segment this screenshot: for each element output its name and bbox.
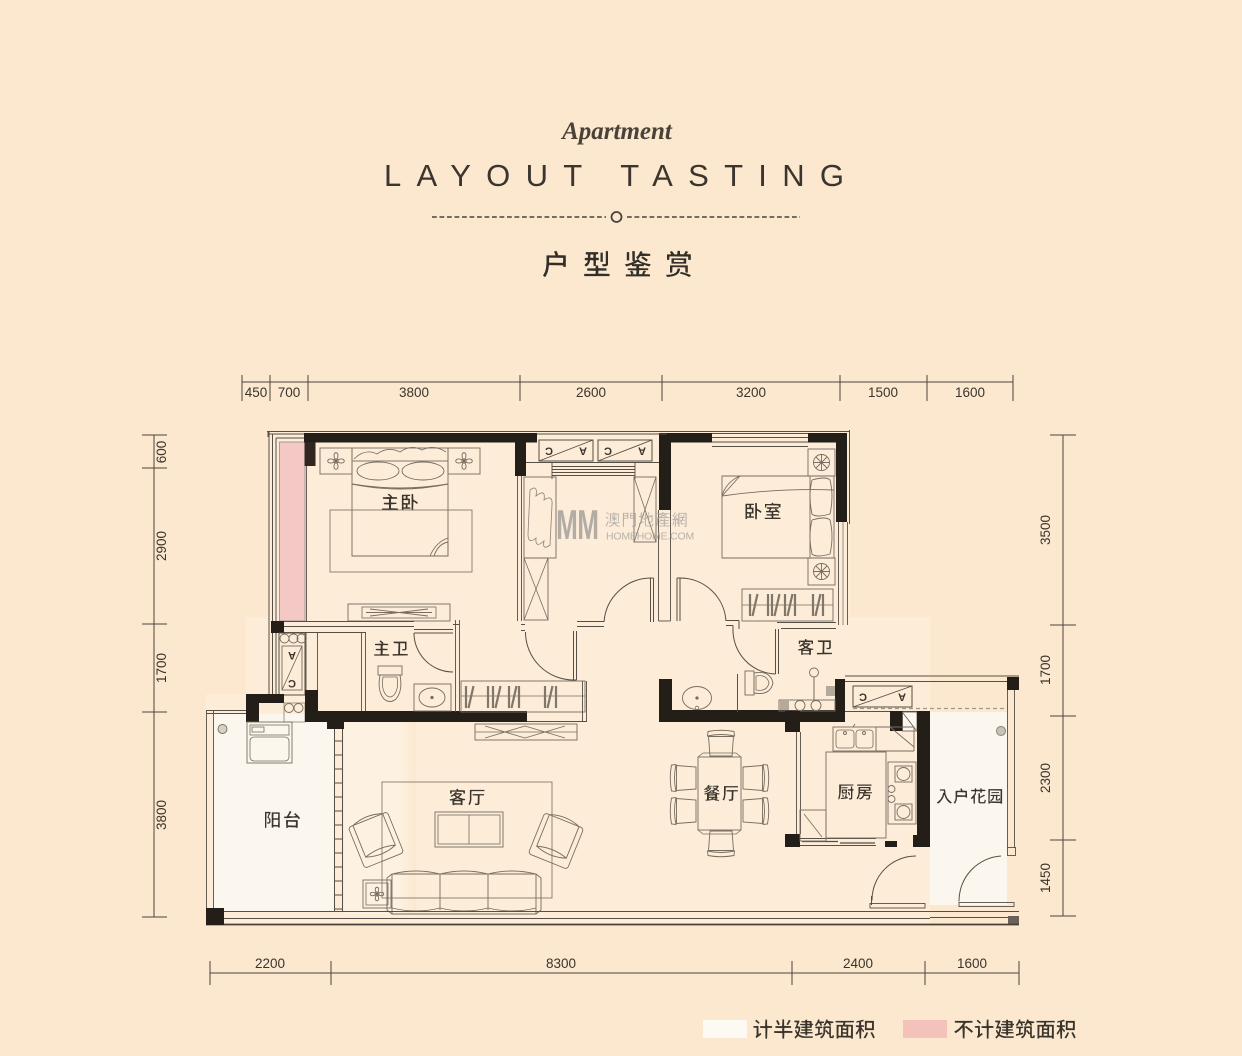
svg-text:1500: 1500	[868, 385, 898, 400]
svg-text:1700: 1700	[154, 653, 169, 683]
svg-text:A: A	[579, 445, 587, 457]
svg-text:1700: 1700	[1038, 655, 1053, 685]
svg-text:2300: 2300	[1038, 763, 1053, 793]
svg-text:C: C	[545, 445, 553, 457]
svg-text:2600: 2600	[576, 385, 606, 400]
svg-text:C: C	[604, 445, 612, 457]
svg-text:1450: 1450	[1038, 863, 1053, 893]
svg-text:A: A	[638, 445, 646, 457]
svg-text:A: A	[898, 691, 906, 703]
svg-text:C: C	[288, 677, 296, 689]
svg-text:A: A	[288, 649, 296, 661]
svg-text:2900: 2900	[154, 531, 169, 561]
svg-text:8300: 8300	[546, 956, 576, 971]
svg-text:HOMEHOME.COM: HOMEHOME.COM	[606, 531, 694, 543]
svg-text:3200: 3200	[736, 385, 766, 400]
svg-text:2200: 2200	[255, 956, 285, 971]
svg-text:3800: 3800	[154, 800, 169, 830]
svg-text:3800: 3800	[399, 385, 429, 400]
svg-text:C: C	[859, 691, 867, 703]
svg-text:1600: 1600	[957, 956, 987, 971]
svg-text:700: 700	[278, 385, 301, 400]
svg-text:1600: 1600	[955, 385, 985, 400]
svg-text:3500: 3500	[1038, 515, 1053, 545]
svg-text:2400: 2400	[843, 956, 873, 971]
svg-text:Apartment: Apartment	[560, 118, 673, 145]
svg-text:450: 450	[245, 385, 268, 400]
svg-text:MM: MM	[556, 502, 598, 549]
svg-text:600: 600	[154, 441, 169, 464]
